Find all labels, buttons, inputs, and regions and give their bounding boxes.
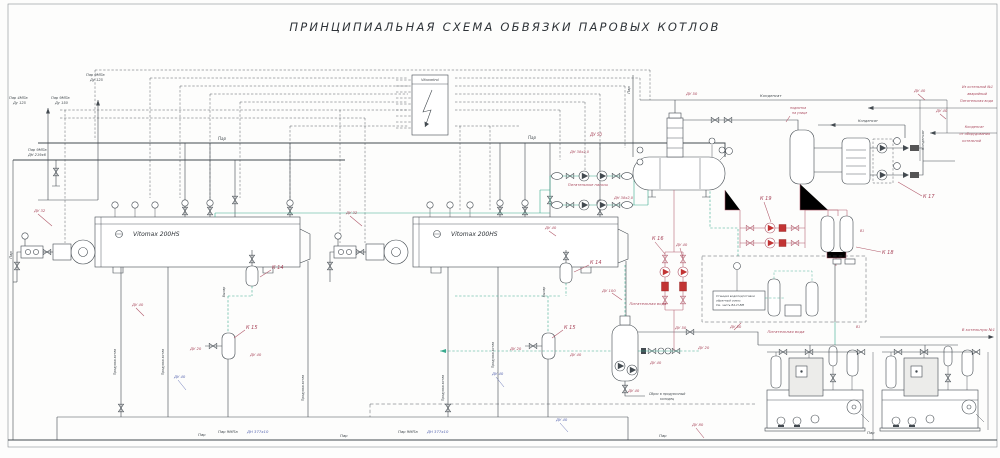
pipe-label: ДУ 100: [601, 288, 616, 293]
pipe-label: См. часть ВА-П-ВМ: [716, 303, 745, 307]
pipe-label: аварийный: [967, 92, 988, 96]
pipe-label: котельной: [962, 139, 982, 143]
pipe-label: ДН 38х2,0: [569, 150, 590, 154]
pipe-label: Пар 4МПа: [9, 96, 28, 100]
pipe-label: ДУ 40: [131, 302, 144, 307]
boiler-2-label: Vitomax 200HS: [451, 231, 498, 238]
pipe-label: Ду 150: [54, 101, 69, 105]
pipe-label: ДУ 50: [685, 91, 698, 96]
pipe-label: К 14: [272, 265, 284, 271]
pipe-label: Из котельной №1: [962, 85, 993, 89]
burner-1: [13, 233, 95, 282]
pipe-label: Питательная вода: [960, 99, 993, 103]
pipe-label: ДУ 40: [649, 360, 662, 365]
pipe-label: ДУ 40: [555, 417, 568, 422]
pipe-label: Выпар: [222, 287, 226, 297]
pipe-label: ДУ 32: [345, 210, 358, 215]
pipe-label: ДУ 40: [935, 108, 948, 113]
pipe-label: Питательная вода: [630, 301, 668, 306]
pipe-label: Сброс в продувочный: [649, 392, 685, 396]
pipe-label: ДУ 80: [691, 422, 704, 427]
safety-valve-icons: [112, 196, 603, 217]
pipe-label: Пар: [198, 432, 206, 437]
pipe-label: ДН 38х2,0: [613, 196, 634, 200]
pipe-label: Конденсат: [965, 125, 985, 129]
pipe-label: подпитка: [790, 106, 806, 110]
pipe-label: ДУ 50: [729, 324, 742, 329]
pipe-label: колодец: [660, 397, 674, 401]
k18-cylinders: [821, 210, 853, 266]
control-panel-label: Vitocontrol: [421, 78, 438, 82]
pipe-label: В1: [856, 325, 860, 329]
pipe-label: ДУ 40: [627, 388, 640, 393]
pipe-label: Продувка котла: [441, 375, 445, 401]
pipe-label: ДУ 40: [491, 371, 504, 376]
pipe-label: Выпар: [542, 287, 546, 297]
pipe-label: Пар 9МПа: [398, 429, 418, 434]
schematic-page: ПРИНЦИПИАЛЬНАЯ СХЕМА ОБВЯЗКИ ПАРОВЫХ КОТ…: [0, 0, 1000, 458]
water-treatment-station: [702, 256, 866, 322]
pipe-label: ДУ 40: [544, 225, 557, 230]
pipe-label: ДУ 40: [675, 242, 688, 247]
pipe-label: К 14: [590, 260, 602, 266]
pipe-label: В котельную №1: [962, 327, 995, 332]
pipe-label: К 15: [564, 325, 576, 331]
k17-condensate-unit: [790, 100, 997, 210]
pipe-label: ДУ 20: [697, 345, 710, 350]
pipe-label: Пар: [218, 136, 226, 141]
burner-2: [327, 233, 408, 282]
pipe-label: Ду 125: [89, 78, 104, 82]
pipe-label: ДУ 40: [569, 352, 582, 357]
pipe-label: Продувка котла: [491, 342, 495, 368]
pipe-label: Пар 9МПа: [51, 96, 70, 100]
pipe-label: ДУ 20: [189, 346, 202, 351]
pipe-label: ДУ 20: [509, 346, 522, 351]
pipe-label: В1: [860, 229, 864, 233]
feed-pumps: [552, 171, 633, 210]
boiler-1-label: Vitomax 200HS: [133, 231, 180, 238]
pipe-label: Станция водоподготовки: [716, 294, 755, 298]
pipe-label: К 18: [882, 250, 894, 256]
pipe-label: К 19: [760, 196, 772, 202]
pipe-label: Пар 9МПа: [218, 429, 238, 434]
pipe-label: на улице: [792, 111, 807, 115]
pipe-label: ДУ 50: [674, 325, 687, 330]
pipe-label: Пар: [340, 433, 348, 438]
pipe-label: ДН 377х10: [426, 429, 449, 434]
pipe-label: К 16: [652, 236, 664, 242]
pipe-label: ДУ 40: [173, 374, 186, 379]
pipe-label: К 17: [923, 194, 935, 200]
boiler-unit-1: [765, 346, 869, 431]
pipe-label: Пар: [8, 251, 13, 259]
pipe-label: ДУ 40: [249, 352, 262, 357]
boiler-unit-2: [880, 346, 984, 431]
pipe-label: Пар: [626, 86, 631, 94]
pipe-label: ДУ 50: [589, 132, 602, 137]
pipe-label: Пар: [528, 135, 536, 140]
k15-vessel-1: [205, 333, 235, 417]
pipe-label: Продувка котла: [161, 349, 165, 375]
pipe-label: Пар 9МПа: [28, 148, 47, 152]
pipe-label: ДН 377х10: [246, 429, 269, 434]
pipe-label: Пар: [867, 430, 875, 435]
pipe-label: от оборудования: [960, 132, 990, 136]
pipe-label: Пар 9МПа: [86, 73, 105, 77]
pipe-label: Питательная вода: [768, 329, 806, 334]
pipe-label: Продувка котла: [113, 349, 117, 375]
pipe-label: Питательные насосы: [568, 183, 608, 187]
pipe-label: К 15: [246, 325, 258, 331]
pipe-label: Конденсат: [760, 93, 782, 98]
pipe-label: Пар: [659, 433, 667, 438]
schematic-title: ПРИНЦИПИАЛЬНАЯ СХЕМА ОБВЯЗКИ ПАРОВЫХ КОТ…: [289, 20, 720, 34]
control-panel: Vitocontrol: [412, 75, 448, 135]
pipe-label: ДУ 40: [913, 88, 926, 93]
pipe-label: Ду 125: [12, 101, 27, 105]
pipe-label: ДУ 32: [33, 208, 46, 213]
pipe-label: ДН 219х6: [27, 153, 47, 157]
pipe-label: Конденсат: [858, 119, 879, 123]
k15-vessel-2: [525, 333, 555, 417]
pipe-label: Продувка котла: [301, 375, 305, 401]
pipe-label: Конденсат: [921, 129, 925, 150]
pipe-label: обратный осмос: [716, 299, 741, 303]
schematic-canvas: ПРИНЦИПИАЛЬНАЯ СХЕМА ОБВЯЗКИ ПАРОВЫХ КОТ…: [0, 0, 1000, 458]
